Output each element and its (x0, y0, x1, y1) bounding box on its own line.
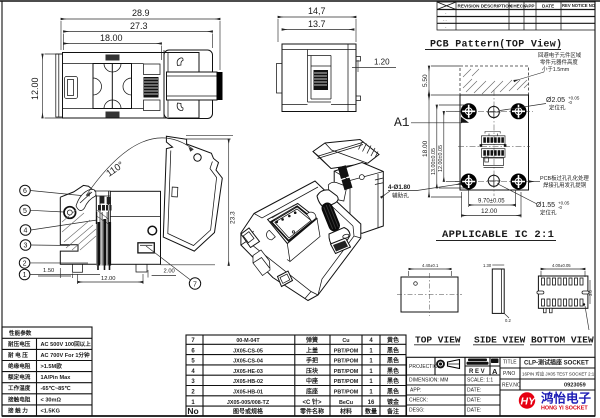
svg-text:4-Ø1.80: 4-Ø1.80 (388, 184, 411, 191)
svg-text:JX05-HB-02: JX05-HB-02 (233, 379, 263, 385)
svg-text:PBT/POM: PBT/POM (334, 390, 359, 396)
svg-text:APP:: APP: (410, 388, 421, 394)
svg-text:PBT/POM: PBT/POM (334, 369, 359, 375)
svg-text:2: 2 (23, 261, 27, 268)
svg-text:16: 16 (368, 400, 375, 406)
svg-text:小于1.5mm: 小于1.5mm (542, 65, 570, 73)
svg-text:黑色: 黑色 (387, 346, 399, 354)
svg-text:工作温度: 工作温度 (8, 384, 31, 392)
svg-text:额定电流: 额定电流 (8, 373, 31, 381)
svg-text:焊接孔用发孔提铜: 焊接孔用发孔提铜 (543, 181, 587, 189)
svg-text:弹簧: 弹簧 (306, 336, 318, 344)
svg-text:REV NOTICE NO: REV NOTICE NO (562, 3, 596, 8)
svg-text:<C 针>: <C 针> (302, 398, 322, 406)
svg-text:< 30mΩ: < 30mΩ (41, 397, 62, 403)
svg-text:数量: 数量 (365, 408, 377, 416)
svg-text:接触电阻: 接触电阻 (8, 395, 31, 403)
svg-text:BeCu: BeCu (339, 400, 353, 406)
svg-text:接 触 力: 接 触 力 (8, 406, 28, 414)
svg-text:12.00: 12.00 (30, 77, 40, 100)
svg-text:黑色: 黑色 (387, 377, 399, 385)
svg-text:REVISION DESCRIPTION: REVISION DESCRIPTION (458, 3, 513, 8)
svg-text:0923059: 0923059 (564, 383, 586, 389)
svg-text:13.00±0.05: 13.00±0.05 (431, 148, 437, 175)
svg-text:回避电子元件区域: 回避电子元件区域 (538, 51, 582, 59)
svg-text:APPLICABLE IC 2:1: APPLICABLE IC 2:1 (442, 229, 554, 241)
svg-text:黄色: 黄色 (387, 336, 399, 344)
svg-text:黑色: 黑色 (387, 367, 399, 375)
svg-text:CHECK:: CHECK: (409, 398, 428, 404)
svg-text:28.9: 28.9 (132, 8, 150, 18)
svg-text:13.7: 13.7 (308, 19, 326, 29)
svg-text:定位孔: 定位孔 (540, 209, 557, 217)
svg-text:6: 6 (23, 188, 27, 195)
svg-text:性能参数: 性能参数 (8, 329, 32, 337)
svg-text:PBT/POM: PBT/POM (334, 348, 359, 354)
svg-text:3.0: 3.0 (588, 290, 593, 296)
svg-text:16PIN 对应 JX05 TEST SOCKET 2:1: 16PIN 对应 JX05 TEST SOCKET 2:1 (522, 371, 595, 378)
svg-text:P/NO: P/NO (503, 371, 515, 377)
svg-text:中座: 中座 (306, 377, 318, 385)
svg-text:1A/Pin Max: 1A/Pin Max (41, 375, 72, 381)
svg-text:1: 1 (23, 272, 27, 279)
svg-text:DATE:: DATE: (467, 408, 481, 414)
svg-text:7: 7 (193, 281, 197, 288)
svg-text:23.3: 23.3 (230, 211, 237, 224)
svg-text:DIMENSION: MM: DIMENSION: MM (409, 378, 448, 384)
svg-text:9.70±0.05: 9.70±0.05 (478, 199, 505, 205)
svg-text:DATE:: DATE: (467, 388, 481, 394)
svg-text:JX05-005/008-TZ: JX05-005/008-TZ (227, 400, 270, 406)
svg-text:Ø2.05: Ø2.05 (546, 97, 565, 104)
svg-text:HONG YI SOCKET: HONG YI SOCKET (541, 406, 588, 412)
svg-text:AC 700V For 1分钟: AC 700V For 1分钟 (41, 351, 91, 359)
svg-text:R E V: R E V (469, 369, 485, 375)
svg-text:18.00: 18.00 (100, 33, 123, 43)
svg-text:JX05-HE-03: JX05-HE-03 (233, 369, 263, 375)
svg-text:鸿怡电子: 鸿怡电子 (541, 391, 592, 406)
svg-text:No: No (187, 406, 198, 416)
svg-text:A1: A1 (394, 115, 410, 130)
svg-text:上盖: 上盖 (306, 346, 318, 354)
svg-text:REV.NO: REV.NO (502, 383, 521, 389)
svg-text:耐 电 压: 耐 电 压 (8, 351, 28, 359)
svg-text:备注: 备注 (386, 408, 399, 416)
svg-text:>1.5M欧: >1.5M欧 (41, 362, 63, 370)
svg-text:DATE: DATE (542, 3, 554, 8)
svg-text:3: 3 (24, 243, 28, 250)
svg-text:零件名称: 零件名称 (299, 408, 324, 416)
svg-text:DATE:: DATE: (467, 398, 481, 404)
svg-text:4.40±0.1: 4.40±0.1 (422, 263, 439, 268)
svg-text:5.50: 5.50 (422, 74, 429, 87)
svg-text:1.20: 1.20 (374, 58, 390, 67)
svg-text:JX05-CS-05: JX05-CS-05 (233, 348, 263, 354)
svg-text:SIDE VIEW: SIDE VIEW (474, 335, 526, 346)
svg-text:5: 5 (23, 208, 27, 215)
svg-text:TITLE: TITLE (503, 360, 517, 366)
svg-text:PCB板过孔孔化处理: PCB板过孔孔化处理 (540, 174, 589, 182)
svg-text:Ø1.55: Ø1.55 (536, 202, 555, 209)
svg-text:CLP-测试插座 SOCKET: CLP-测试插座 SOCKET (524, 359, 589, 367)
svg-text:PBT/POM: PBT/POM (334, 359, 359, 365)
svg-text:黑色: 黑色 (387, 388, 399, 396)
svg-text:27.3: 27.3 (130, 21, 148, 31)
svg-text:TOP VIEW: TOP VIEW (415, 335, 461, 346)
svg-text:APP: APP (525, 3, 534, 8)
svg-text:12.00: 12.00 (101, 276, 116, 282)
svg-text:1.50: 1.50 (43, 268, 54, 274)
svg-text:镀金: 镀金 (387, 398, 400, 406)
svg-text:-0: -0 (558, 205, 562, 210)
svg-text:辅助孔: 辅助孔 (392, 192, 409, 200)
svg-text:DESG:: DESG: (409, 408, 425, 414)
svg-text:12.00±0.05: 12.00±0.05 (438, 145, 444, 172)
svg-text:绝缘电阻: 绝缘电阻 (8, 362, 31, 370)
svg-text:-0: -0 (568, 100, 572, 105)
svg-text:AC 500V 100回以上: AC 500V 100回以上 (41, 340, 92, 348)
svg-text:14,7: 14,7 (308, 6, 326, 16)
svg-text:压块: 压块 (306, 367, 319, 375)
svg-text:18.00: 18.00 (422, 140, 429, 157)
svg-text:JX05-HB-01: JX05-HB-01 (233, 390, 263, 396)
svg-text:- -: - - (443, 18, 447, 23)
svg-text:耐压电压: 耐压电压 (8, 340, 31, 348)
svg-text:1.30: 1.30 (483, 263, 492, 268)
svg-text:Cu: Cu (342, 338, 349, 344)
svg-text:材料: 材料 (339, 408, 352, 416)
svg-text:HY: HY (521, 396, 537, 408)
svg-text:4: 4 (24, 228, 28, 235)
svg-text:A: A (492, 367, 498, 376)
svg-text:0.2: 0.2 (505, 318, 511, 323)
svg-text:PCB Pattern(TOP View): PCB Pattern(TOP View) (430, 39, 562, 51)
svg-text:PBT/POM: PBT/POM (334, 379, 359, 385)
svg-text:BOTTOM VIEW: BOTTOM VIEW (531, 335, 594, 346)
svg-text:2.00: 2.00 (164, 269, 175, 275)
svg-text:黑色: 黑色 (387, 357, 399, 365)
svg-text:4.00±0.05: 4.00±0.05 (552, 263, 571, 268)
svg-text:12.00: 12.00 (481, 208, 498, 215)
svg-text:底座: 底座 (306, 388, 318, 396)
svg-text:手把: 手把 (306, 357, 318, 365)
svg-text:00-M-04T: 00-M-04T (236, 338, 260, 344)
svg-text:图号或规格: 图号或规格 (233, 408, 264, 416)
svg-text:零件元器件高度: 零件元器件高度 (540, 58, 578, 66)
svg-text:定位孔: 定位孔 (549, 104, 566, 112)
svg-text:SCALE: 1:1: SCALE: 1:1 (467, 378, 493, 384)
svg-text:JX05-CS-04: JX05-CS-04 (233, 359, 263, 365)
svg-text:<1.5KG: <1.5KG (41, 408, 60, 414)
svg-text:-65℃~85℃: -65℃~85℃ (41, 385, 72, 392)
